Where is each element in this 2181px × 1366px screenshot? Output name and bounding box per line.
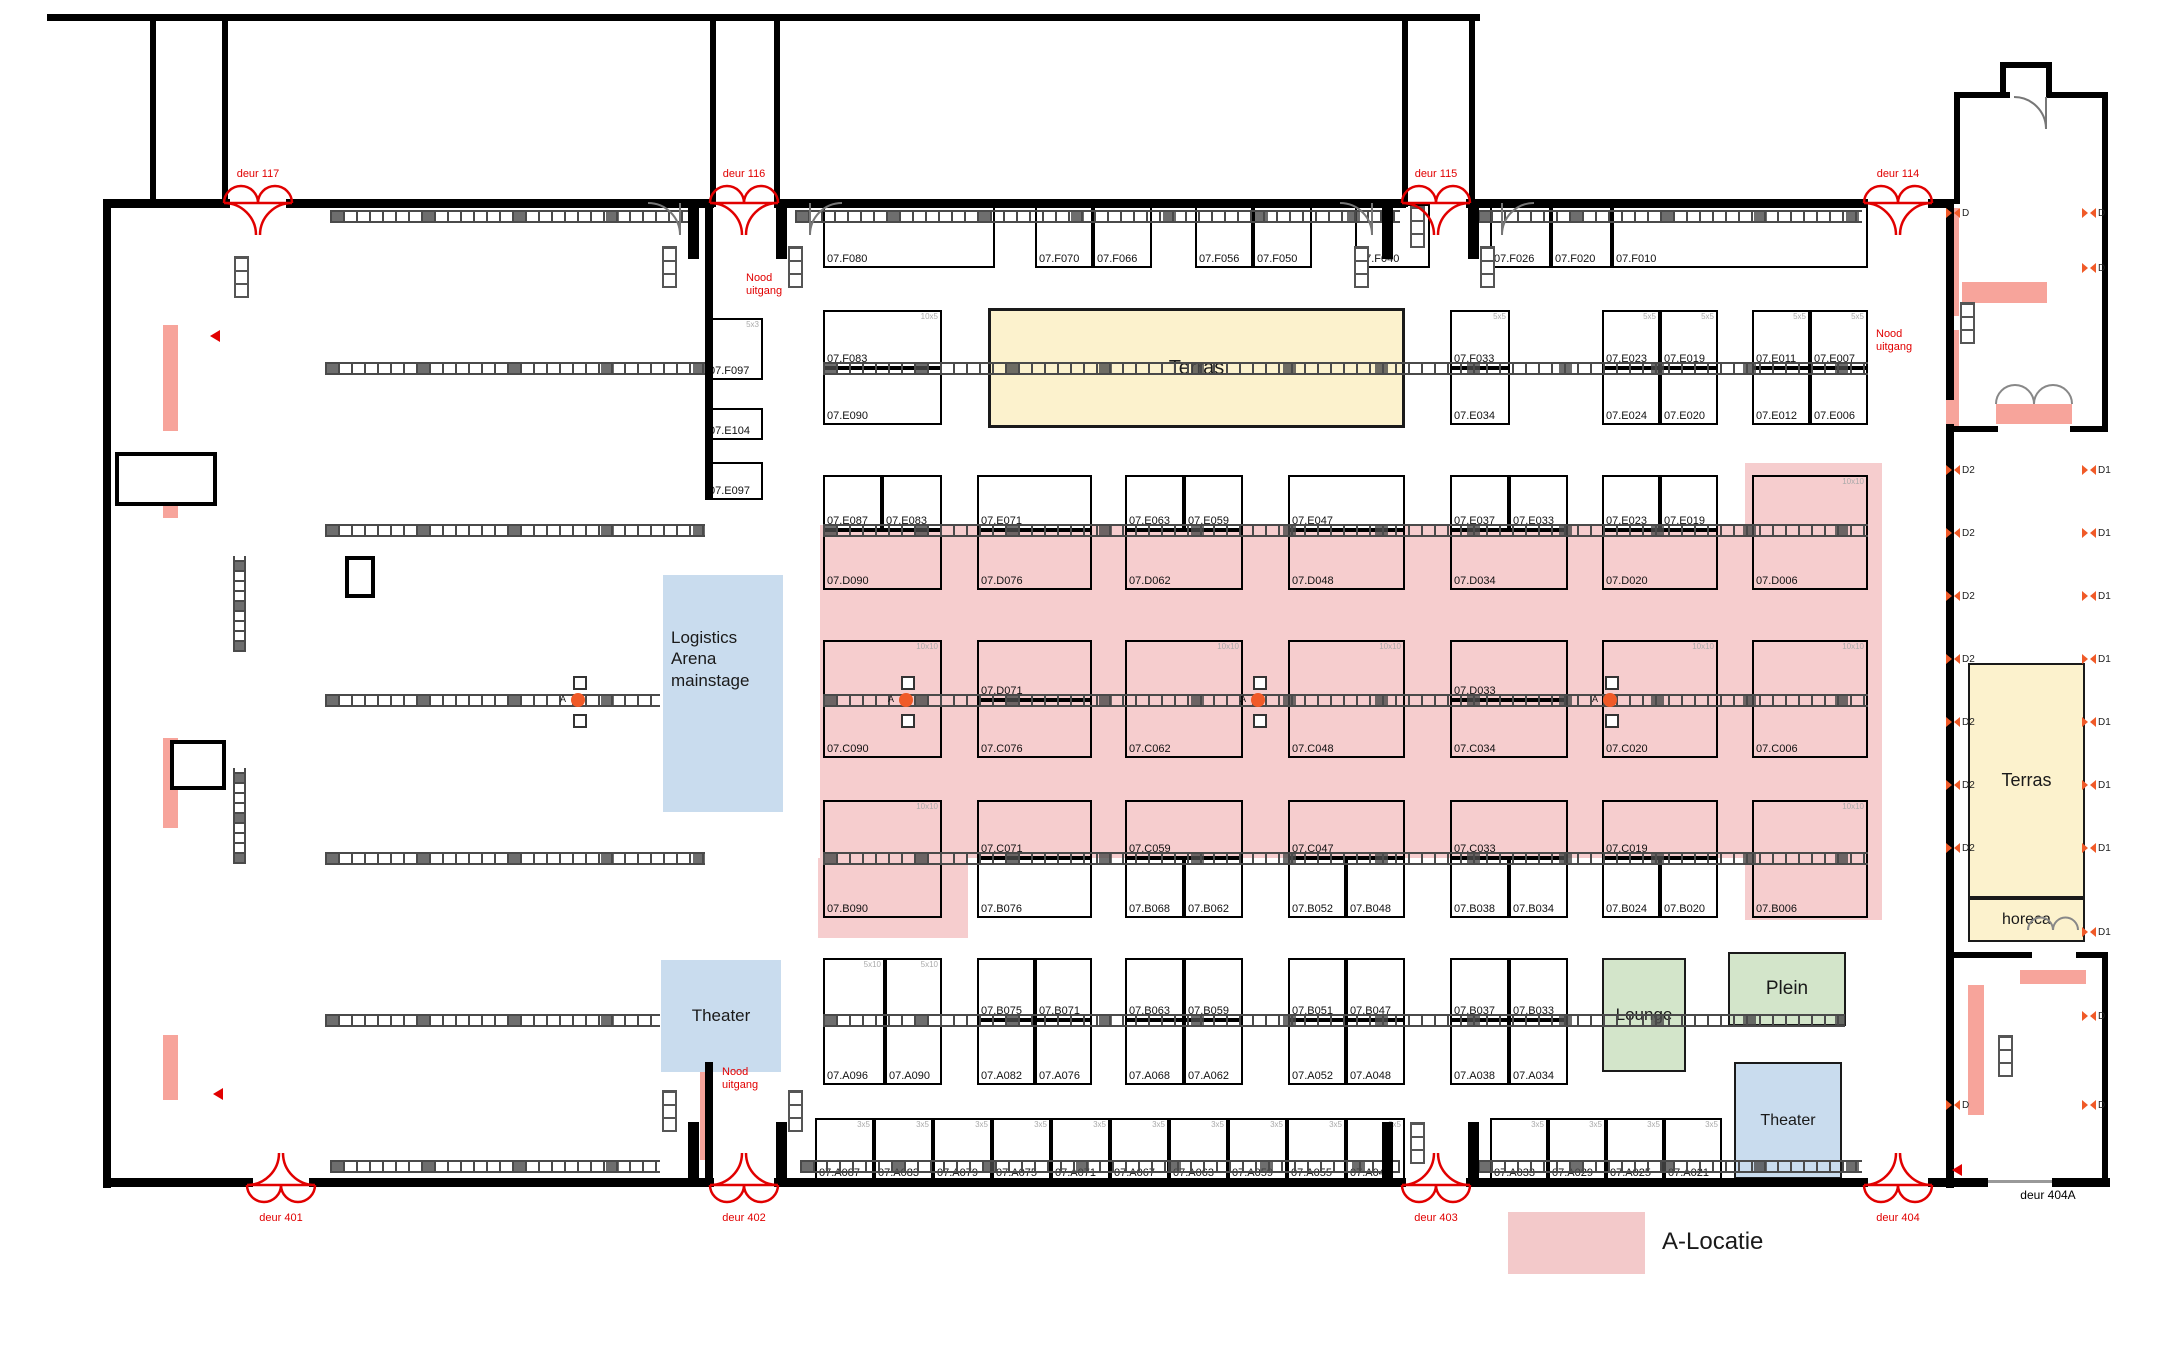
booth-label: 07.E104 (709, 425, 750, 438)
booth: 07.D071 (977, 640, 1092, 700)
emergency-exit-strip (163, 1035, 178, 1100)
door-marker-label: D1 (2098, 465, 2111, 476)
booth: 07.C071 (977, 800, 1092, 858)
wall-segment (309, 1178, 714, 1187)
wall-segment (2102, 952, 2108, 1184)
double-door-icon (709, 1151, 779, 1215)
booth-label: 07.D020 (1606, 575, 1648, 588)
booth-label: 07.B024 (1606, 903, 1647, 916)
door-marker-label: D1 (2098, 927, 2111, 938)
wall-segment (106, 1178, 253, 1187)
wall-segment (1466, 1178, 1868, 1187)
booth: 07.C047 (1288, 800, 1405, 858)
door-marker-icon (1946, 464, 1960, 476)
door-swing-arc-icon (2012, 97, 2048, 133)
booth-label: 07.F056 (1199, 253, 1239, 266)
a-point-label: A (888, 694, 894, 704)
booth-label: 07.C048 (1292, 743, 1334, 756)
door-marker-d1: D1 (2082, 926, 2111, 938)
zone-label-terras-right: Terras (2001, 769, 2051, 792)
double-door-icon (1863, 1151, 1933, 1215)
door-marker-label: D (2098, 1100, 2105, 1111)
wall-segment (2070, 426, 2108, 432)
booth-size-tag: 3x5 (1093, 1120, 1106, 1129)
booth: 07.A034 (1509, 1020, 1568, 1085)
booth: 07.C033 (1450, 800, 1568, 858)
booth-size-tag: 3x5 (1647, 1120, 1660, 1129)
utility-cabinet-icon (1998, 1035, 2013, 1077)
booth-size-tag: 3x5 (1531, 1120, 1544, 1129)
nood-uitgang-label: Nood uitgang (1876, 328, 1912, 354)
booth-size-tag: 5x5 (1493, 312, 1506, 321)
booth-size-tag: 5x5 (1851, 312, 1864, 321)
door-marker-d2: D2 (1946, 779, 1975, 791)
rig-square-icon (1253, 676, 1267, 690)
door-marker-d1: D1 (2082, 779, 2111, 791)
wall-segment (1382, 1122, 1393, 1182)
booth-size-tag: 10x10 (1842, 802, 1864, 811)
booth: 07.F0975x3 (705, 318, 763, 380)
door-swing-arc-icon (1500, 203, 1536, 239)
rigging-truss-row (823, 362, 1868, 375)
door-marker-icon (1946, 590, 1960, 602)
booth-label: 07.B038 (1454, 903, 1495, 916)
door-marker-label: D1 (2098, 528, 2111, 539)
rigging-truss-row (325, 362, 705, 375)
zone-theater-left: Theater (661, 960, 781, 1072)
wall-segment (2076, 952, 2104, 958)
rig-square-icon (1605, 676, 1619, 690)
door-marker-label: D1 (2098, 717, 2111, 728)
door-marker-icon (1946, 527, 1960, 539)
booth: 07.D033 (1450, 640, 1568, 700)
booth-label: 07.B020 (1664, 903, 1705, 916)
wall-segment (2052, 92, 2108, 98)
booth-size-tag: 5x10 (921, 960, 938, 969)
booth: 07.B052 (1288, 858, 1346, 918)
zone-label-plein: Plein (1766, 977, 1808, 1001)
booth-label: 07.D062 (1129, 575, 1171, 588)
booth-size-tag: 3x5 (975, 1120, 988, 1129)
door-marker-d1: D1 (2082, 590, 2111, 602)
booth-size-tag: 10x10 (916, 642, 938, 651)
rig-square-icon (1253, 714, 1267, 728)
door-marker-d: D (1946, 207, 1969, 219)
booth: 07.E0195x5 (1660, 310, 1718, 368)
double-door-icon (223, 173, 293, 237)
booth: 07.B076 (977, 858, 1092, 918)
booth-size-tag: 10x10 (1692, 642, 1714, 651)
booth: 07.D034 (1450, 530, 1568, 590)
booth: 07.A076 (1035, 1020, 1092, 1085)
door-marker-d1: D1 (2082, 464, 2111, 476)
emergency-exit-strip (163, 325, 178, 431)
rigging-truss-row (325, 852, 705, 865)
booth-size-tag: 5x3 (746, 320, 759, 329)
a-point-label: A (560, 694, 566, 704)
rigging-truss-row (795, 210, 1400, 223)
booth: 07.B037 (1450, 958, 1509, 1020)
booth-label: 07.F026 (1494, 253, 1534, 266)
door-marker-label: D1 (2098, 780, 2111, 791)
wall-segment (1954, 92, 1960, 204)
booth: 07.B062 (1184, 858, 1243, 918)
booth-size-tag: 3x5 (1329, 1120, 1342, 1129)
wall-segment (1928, 1178, 1988, 1187)
door-marker-icon (2082, 207, 2096, 219)
rigging-truss-row (330, 210, 695, 223)
zone-terras-right: Terras (1968, 663, 2085, 898)
booth: 07.B071 (1035, 958, 1092, 1020)
wall-segment (47, 14, 1480, 21)
booth-size-tag: 5x5 (1643, 312, 1656, 321)
booth: 07.B020 (1660, 858, 1718, 918)
booth: 07.D076 (977, 530, 1092, 590)
booth-label: 07.F066 (1097, 253, 1137, 266)
booth: 07.C059 (1125, 800, 1243, 858)
door-marker-icon (2082, 842, 2096, 854)
booth: 07.D048 (1288, 530, 1405, 590)
door-marker-icon (2082, 716, 2096, 728)
booth-size-tag: 5x10 (864, 960, 881, 969)
door-marker-icon (2082, 779, 2096, 791)
exit-arrow-icon (210, 330, 220, 342)
door-swing-arc-icon (808, 203, 844, 239)
booth-label: 07.D048 (1292, 575, 1334, 588)
booth: 07.F08310x5 (823, 310, 942, 368)
booth: 07.E0235x5 (1602, 310, 1660, 368)
booth: 07.E037 (1450, 475, 1509, 530)
rigging-truss-row (1478, 1160, 1862, 1173)
booth: 07.E0115x5 (1752, 310, 1810, 368)
booth: 07.E047 (1288, 475, 1405, 530)
booth: 07.B059 (1184, 958, 1243, 1020)
nood-uitgang-label: Nood uitgang (746, 272, 782, 298)
booth-label: 07.F097 (709, 365, 749, 378)
rigging-truss-column (233, 556, 246, 652)
zone-label-theater-right: Theater (1760, 1111, 1815, 1131)
zone-logistics-arena-mainstage: Logistics Arena mainstage (663, 575, 783, 812)
wall-segment (2000, 62, 2052, 68)
utility-cabinet-icon (1354, 246, 1369, 288)
booth-size-tag: 3x5 (1034, 1120, 1047, 1129)
booth-label: 07.B034 (1513, 903, 1554, 916)
booth: 07.E012 (1752, 368, 1810, 425)
nood-uitgang-label: Nood uitgang (722, 1066, 758, 1092)
door-marker-icon (1946, 207, 1960, 219)
booth-label: 07.A038 (1454, 1070, 1495, 1083)
door-swing-arc-icon (1338, 203, 1374, 239)
legend-label: A-Locatie (1662, 1228, 1763, 1256)
wall-segment (150, 14, 156, 207)
booth-label: 07.C090 (827, 743, 869, 756)
booth: 07.B047 (1346, 958, 1405, 1020)
utility-cabinet-icon (234, 256, 249, 298)
booth-label: 07.E034 (1454, 410, 1495, 423)
utility-cabinet-icon (1480, 246, 1495, 288)
booth-label: 07.B052 (1292, 903, 1333, 916)
booth-size-tag: 3x5 (1270, 1120, 1283, 1129)
booth: 07.E087 (823, 475, 882, 530)
booth: 07.E033 (1509, 475, 1568, 530)
wall-segment (103, 199, 111, 1188)
door-marker-d2: D2 (1946, 653, 1975, 665)
open-passage (1988, 1180, 2052, 1183)
booth-label: 07.F020 (1555, 253, 1595, 266)
emergency-exit-strip (2020, 970, 2086, 984)
booth: 07.A052 (1288, 1020, 1346, 1085)
door-marker-icon (1946, 716, 1960, 728)
utility-cabinet-icon (788, 1090, 803, 1132)
booth: 07.A062 (1184, 1020, 1243, 1085)
booth-label: 07.C076 (981, 743, 1023, 756)
wall-segment (1946, 199, 1954, 400)
double-door-icon (1401, 1151, 1471, 1215)
door-marker-label: D (2098, 263, 2105, 274)
door-marker-label: D (2098, 208, 2105, 219)
door-marker-label: D2 (1962, 528, 1975, 539)
booth-label: 07.E097 (709, 485, 750, 498)
booth-label: 07.C006 (1756, 743, 1798, 756)
rigging-truss-row (800, 1160, 1400, 1173)
booth-size-tag: 10x10 (916, 802, 938, 811)
utility-cabinet-icon (662, 1090, 677, 1132)
door-marker-label: D2 (1962, 591, 1975, 602)
door-marker-d: D (2082, 262, 2105, 274)
door-swing-arc-icon (646, 203, 682, 239)
door-marker-label: D1 (2098, 591, 2111, 602)
booth-label: 07.B090 (827, 903, 868, 916)
rig-square-icon (573, 714, 587, 728)
booth: 07.E019 (1660, 475, 1718, 530)
double-door-icon (246, 1151, 316, 1215)
wall-segment (774, 1178, 1406, 1187)
booth-size-tag: 3x5 (1211, 1120, 1224, 1129)
door-marker-label: D (1962, 208, 1969, 219)
booth: 07.B063 (1125, 958, 1184, 1020)
emergency-exit-strip (1962, 282, 2047, 303)
booth-label: 07.B006 (1756, 903, 1797, 916)
rig-square-icon (901, 676, 915, 690)
booth-label: 07.F080 (827, 253, 867, 266)
booth: 07.B033 (1509, 958, 1568, 1020)
door-marker-d: D (2082, 1099, 2105, 1111)
booth-size-tag: 3x5 (1152, 1120, 1165, 1129)
wall-segment (1954, 952, 2032, 958)
booth-label: 07.A048 (1350, 1070, 1391, 1083)
booth-label: 07.A090 (889, 1070, 930, 1083)
booth-label: 07.B068 (1129, 903, 1170, 916)
door-marker-d2: D2 (1946, 842, 1975, 854)
booth-label: 07.D090 (827, 575, 869, 588)
door-marker-d1: D1 (2082, 716, 2111, 728)
door-marker-icon (2082, 464, 2096, 476)
rig-square-icon (573, 676, 587, 690)
door-marker-d: D (2082, 207, 2105, 219)
booth-size-tag: 3x5 (916, 1120, 929, 1129)
booth-label: 07.C062 (1129, 743, 1171, 756)
booth-size-tag: 10x10 (1217, 642, 1239, 651)
booth: 07.B068 (1125, 858, 1184, 918)
booth-label: 07.D006 (1756, 575, 1798, 588)
rigging-truss-row (823, 694, 1868, 707)
booth: 07.B048 (1346, 858, 1405, 918)
booth-label: 07.A062 (1188, 1070, 1229, 1083)
booth: 07.E034 (1450, 368, 1510, 425)
booth: 07.C019 (1602, 800, 1718, 858)
booth: 07.D020 (1602, 530, 1718, 590)
booth: 07.C034 (1450, 700, 1568, 758)
door-marker-d: D (1946, 1099, 1969, 1111)
rigging-truss-row (325, 694, 660, 707)
utility-cabinet-icon (662, 246, 677, 288)
door-marker-label: D1 (2098, 843, 2111, 854)
wall-segment (1382, 199, 1393, 259)
booth-label: 07.E006 (1814, 410, 1855, 423)
rig-square-icon (901, 714, 915, 728)
booth-size-tag: 5x5 (1701, 312, 1714, 321)
booth: 07.E006 (1810, 368, 1868, 425)
rigging-truss-row (823, 1014, 1845, 1027)
door-label: deur 404A (2020, 1188, 2075, 1202)
booth: 07.E083 (882, 475, 942, 530)
door-marker-d2: D2 (1946, 716, 1975, 728)
booth: 07.E104 (705, 408, 763, 440)
wall-segment (106, 199, 230, 208)
booth-label: 07.E090 (827, 410, 868, 423)
booth: 07.E020 (1660, 368, 1718, 425)
door-marker-label: D2 (1962, 780, 1975, 791)
booth: 07.A068 (1125, 1020, 1184, 1085)
rigging-truss-column (233, 768, 246, 864)
door-marker-icon (2082, 926, 2096, 938)
booth: 07.A038 (1450, 1020, 1509, 1085)
door-marker-d2: D2 (1946, 527, 1975, 539)
exit-arrow-icon (213, 1088, 223, 1100)
a-point-label: A (1240, 694, 1246, 704)
booth: 07.E071 (977, 475, 1092, 530)
booth: 07.E059 (1184, 475, 1243, 530)
booth-label: 07.E012 (1756, 410, 1797, 423)
door-marker-d1: D1 (2082, 842, 2111, 854)
booth: 07.E024 (1602, 368, 1660, 425)
door-marker-icon (2082, 262, 2096, 274)
booth-label: 07.A076 (1039, 1070, 1080, 1083)
utility-cabinet-icon (1960, 302, 1975, 344)
booth: 07.A048 (1346, 1020, 1405, 1085)
double-door-icon (1401, 173, 1471, 237)
rigging-truss-row (325, 524, 705, 537)
door-marker-icon (2082, 527, 2096, 539)
booth-label: 07.C020 (1606, 743, 1648, 756)
booth-label: 07.D076 (981, 575, 1023, 588)
booth-size-tag: 10x10 (1842, 477, 1864, 486)
door-marker-label: D2 (1962, 843, 1975, 854)
door-marker-label: D2 (1962, 654, 1975, 665)
door-marker-icon (2082, 1010, 2096, 1022)
wall-segment (774, 199, 1406, 208)
a-point-dot-icon (1603, 693, 1617, 707)
service-room-outline (170, 740, 226, 790)
floor-plan: TerrasTerrashorecaLogistics Arena mainst… (0, 0, 2181, 1366)
booth-size-tag: 10x10 (1842, 642, 1864, 651)
booth-label: 07.F010 (1616, 253, 1656, 266)
booth-label: 07.A052 (1292, 1070, 1333, 1083)
emergency-exit-strip (1996, 404, 2072, 424)
rigging-truss-row (325, 1014, 660, 1027)
a-point-label: A (1592, 694, 1598, 704)
booth-label: 07.A082 (981, 1070, 1022, 1083)
booth-size-tag: 5x5 (1793, 312, 1806, 321)
zone-label-logistics-arena-mainstage: Logistics Arena mainstage (671, 627, 749, 691)
a-point-dot-icon (571, 693, 585, 707)
booth: 07.E0075x5 (1810, 310, 1868, 368)
booth-label: 07.A034 (1513, 1070, 1554, 1083)
booth-label: 07.E024 (1606, 410, 1647, 423)
zone-label-theater-left: Theater (692, 1005, 751, 1026)
door-marker-icon (2082, 590, 2096, 602)
booth: 07.E063 (1125, 475, 1184, 530)
door-leaf-arcs-icon (1996, 384, 2072, 406)
booth-label: 07.A068 (1129, 1070, 1170, 1083)
service-room-outline (115, 452, 217, 506)
booth-size-tag: 3x5 (1589, 1120, 1602, 1129)
door-marker-label: D2 (1962, 717, 1975, 728)
rigging-truss-row (330, 1160, 660, 1173)
door-marker-d: D (2082, 1010, 2105, 1022)
service-room-outline (345, 556, 375, 598)
door-marker-icon (1946, 779, 1960, 791)
a-point-dot-icon (899, 693, 913, 707)
utility-cabinet-icon (788, 246, 803, 288)
booth: 07.B034 (1509, 858, 1568, 918)
wall-segment (688, 199, 699, 259)
wall-segment (688, 1122, 699, 1182)
door-marker-d1: D1 (2082, 527, 2111, 539)
booth-label: 07.E020 (1664, 410, 1705, 423)
booth-label: 07.F050 (1257, 253, 1297, 266)
booth: 07.B075 (977, 958, 1035, 1020)
booth-size-tag: 10x5 (921, 312, 938, 321)
booth-label: 07.B048 (1350, 903, 1391, 916)
emergency-exit-strip (1968, 985, 1984, 1115)
door-marker-d2: D2 (1946, 464, 1975, 476)
booth: 07.A082 (977, 1020, 1035, 1085)
door-marker-icon (2082, 653, 2096, 665)
door-leaf-arcs-icon (2028, 910, 2078, 932)
booth: 07.F0335x5 (1450, 310, 1510, 368)
a-point-dot-icon (1251, 693, 1265, 707)
booth: 07.D062 (1125, 530, 1243, 590)
booth: 07.B051 (1288, 958, 1346, 1020)
double-door-icon (1863, 173, 1933, 237)
booth-label: 07.D034 (1454, 575, 1496, 588)
booth: 07.B038 (1450, 858, 1509, 918)
door-marker-icon (1946, 1099, 1960, 1111)
legend-swatch (1508, 1212, 1645, 1274)
booth-label: 07.A096 (827, 1070, 868, 1083)
door-marker-label: D (2098, 1011, 2105, 1022)
rigging-truss-row (823, 852, 1868, 865)
wall-segment (1954, 426, 1998, 432)
booth-label: 07.B076 (981, 903, 1022, 916)
booth-label: 07.C034 (1454, 743, 1496, 756)
booth-size-tag: 3x5 (1705, 1120, 1718, 1129)
door-marker-label: D1 (2098, 654, 2111, 665)
booth-size-tag: 3x5 (857, 1120, 870, 1129)
rig-square-icon (1605, 714, 1619, 728)
door-marker-icon (2082, 1099, 2096, 1111)
